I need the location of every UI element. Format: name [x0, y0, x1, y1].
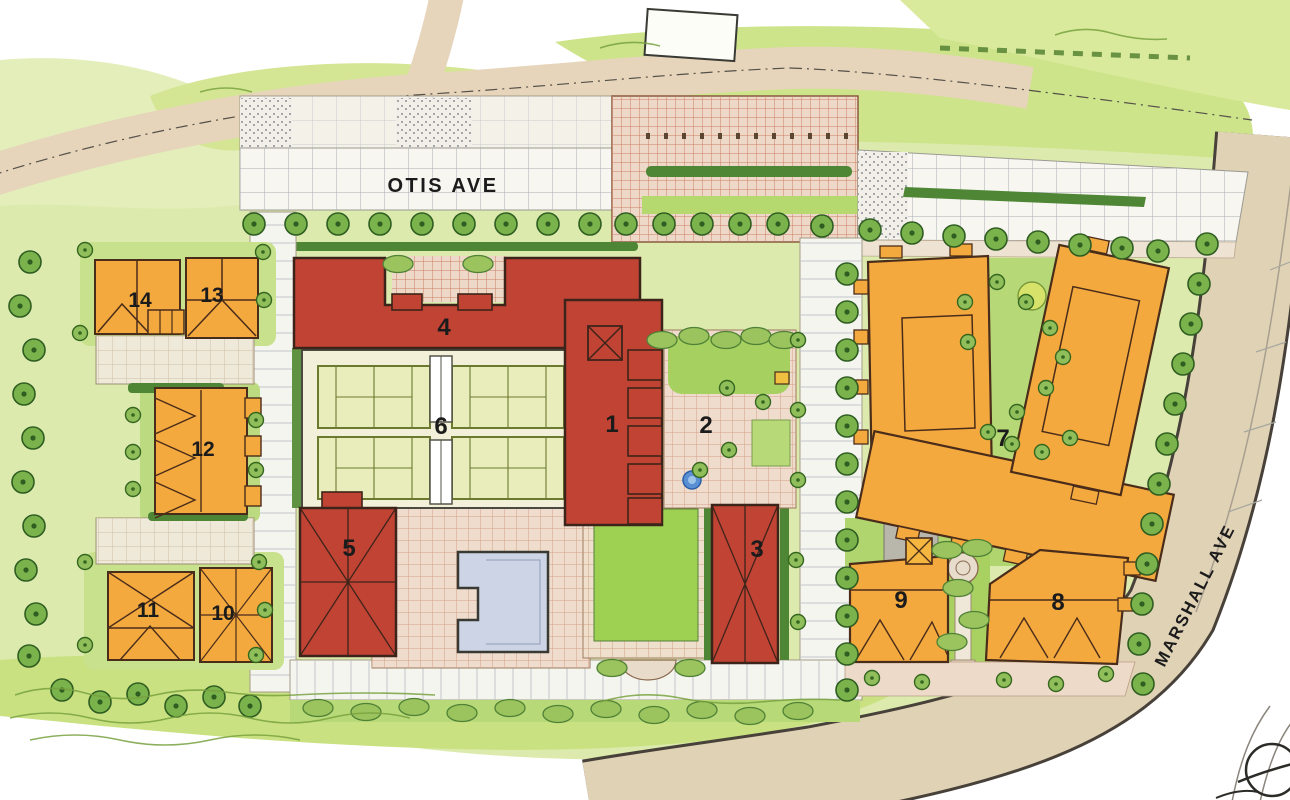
- building-1-label: 1: [605, 411, 618, 438]
- crosswalk: [240, 98, 292, 148]
- otis-ave-label: OTIS AVE: [387, 175, 498, 197]
- building-6-label: 6: [434, 413, 447, 440]
- building-12-label: 12: [191, 438, 214, 461]
- hedge: [292, 242, 638, 251]
- building-14-label: 14: [128, 289, 152, 312]
- building-3-label: 3: [750, 536, 763, 563]
- pool-plaza: [372, 502, 590, 668]
- north-arrow-icon: [1216, 744, 1290, 798]
- building-10-label: 10: [211, 602, 234, 625]
- building-7-label: 7: [996, 425, 1009, 452]
- building-4-label: 4: [437, 314, 451, 341]
- building-13-label: 13: [200, 284, 223, 307]
- building-11-label: 11: [137, 599, 160, 622]
- building-9-label: 9: [894, 587, 907, 614]
- building-5: [300, 492, 396, 656]
- hedge: [646, 166, 852, 177]
- crosswalk: [396, 98, 472, 148]
- outlined-building-footprint: [645, 9, 738, 61]
- site-plan-image: OTIS AVE MARSHALL AVE 1 2 3 4 5 6 7 8 9 …: [0, 0, 1290, 800]
- courtyard-2: [664, 330, 796, 508]
- building-5-label: 5: [342, 535, 355, 562]
- building-8-label: 8: [1051, 589, 1064, 616]
- building-3: [712, 505, 778, 663]
- building-2-label: 2: [699, 412, 712, 439]
- kiosk: [906, 538, 932, 564]
